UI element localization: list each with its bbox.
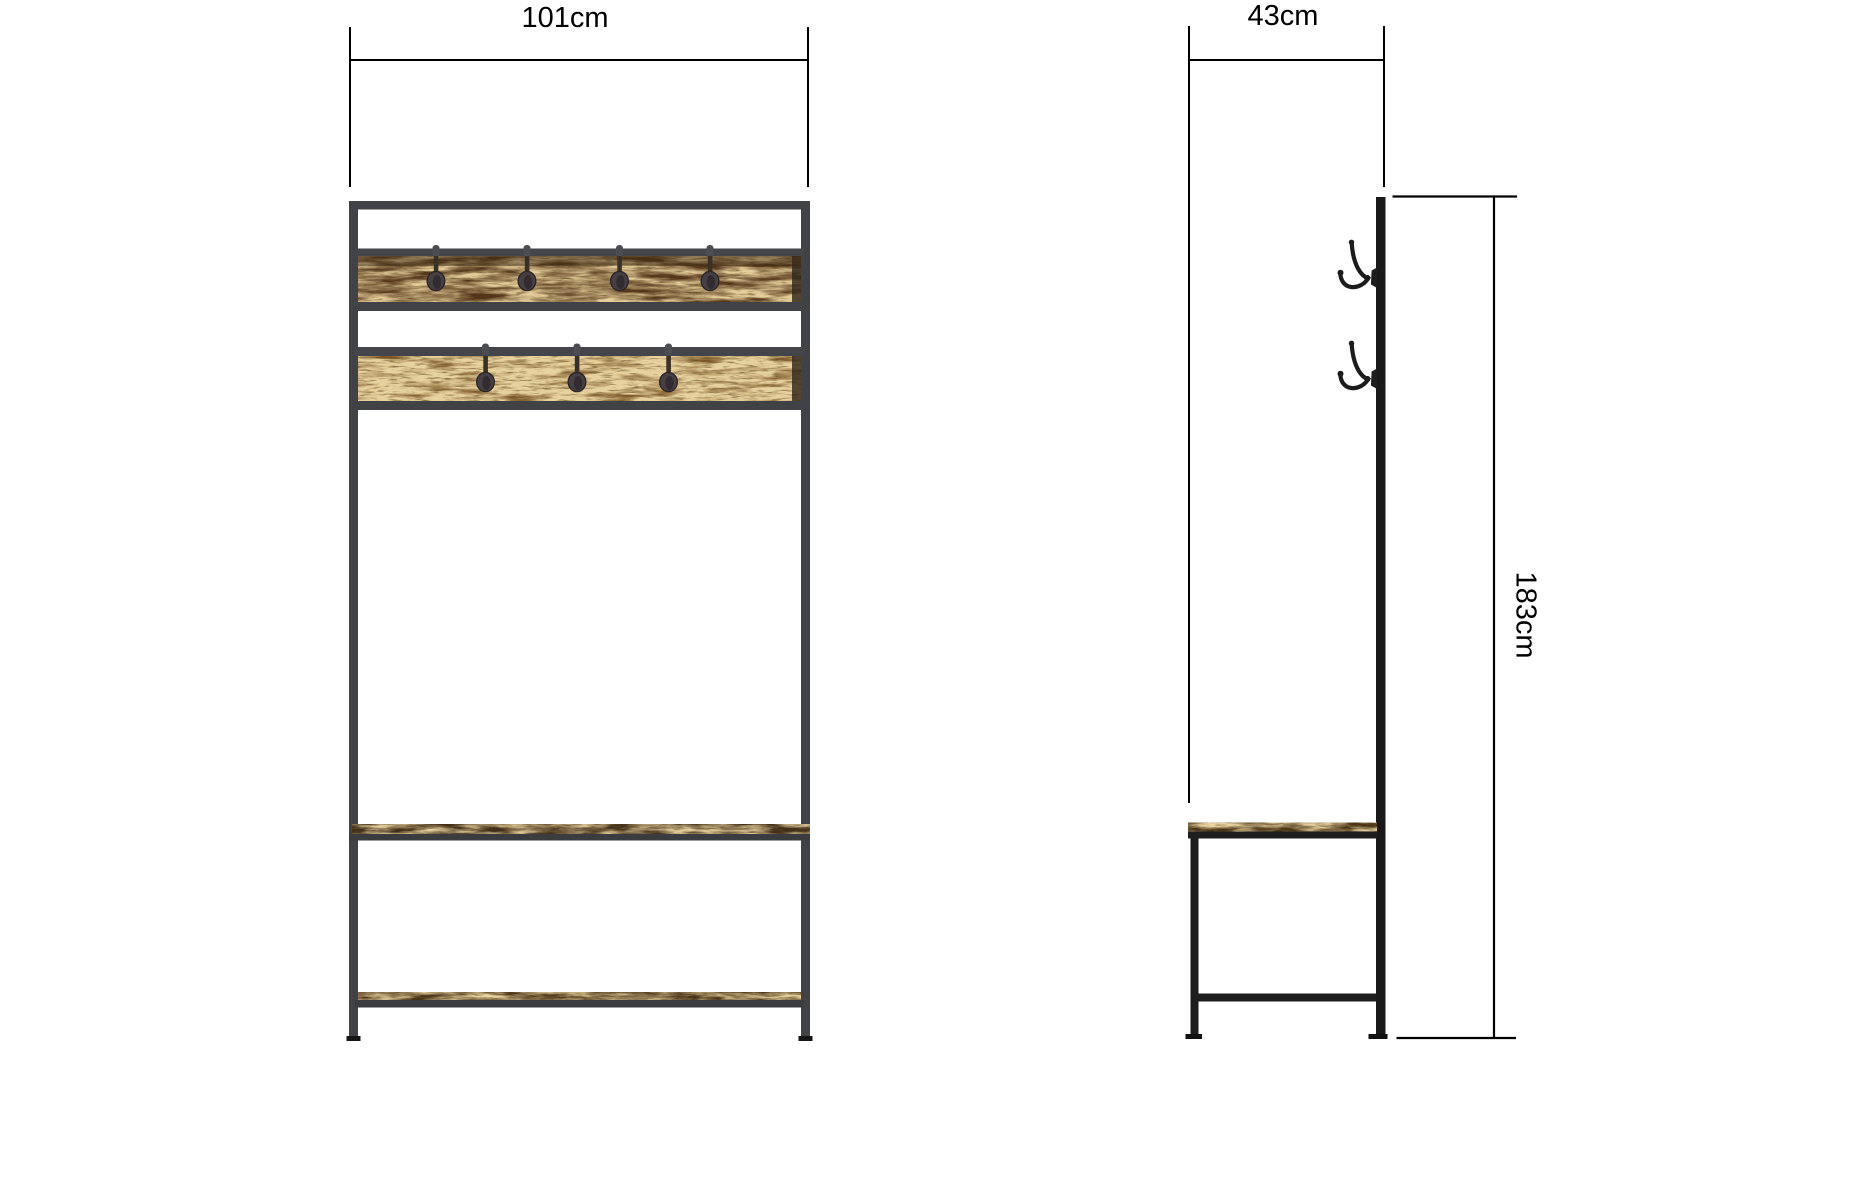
svg-text:101cm: 101cm	[521, 2, 608, 34]
svg-text:183cm: 183cm	[1510, 571, 1542, 658]
svg-text:43cm: 43cm	[1248, 0, 1319, 32]
